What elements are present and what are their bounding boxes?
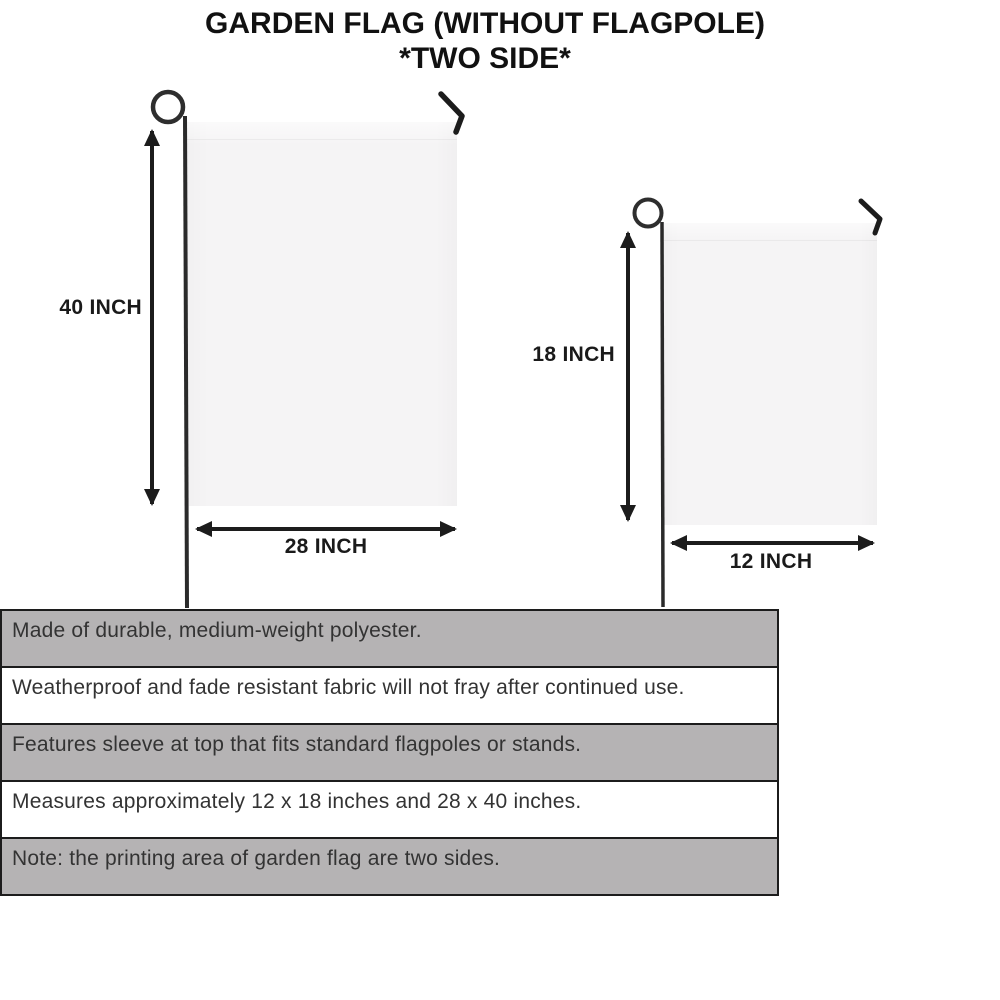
large-height-label: 40 INCH (50, 296, 142, 320)
small-flagpole (662, 222, 663, 607)
small-flag-hook-icon (861, 201, 880, 233)
feature-row: Note: the printing area of garden flag a… (2, 837, 777, 894)
small-flagpole-loop-icon (635, 200, 662, 227)
feature-row: Weatherproof and fade resistant fabric w… (2, 666, 777, 723)
feature-list: Made of durable, medium-weight polyester… (0, 609, 779, 896)
feature-row: Made of durable, medium-weight polyester… (2, 611, 777, 666)
small-height-label: 18 INCH (523, 343, 615, 367)
large-flag-hook-icon (441, 94, 462, 132)
large-flagpole-loop-icon (153, 92, 183, 122)
large-width-label: 28 INCH (236, 535, 416, 559)
feature-row: Features sleeve at top that fits standar… (2, 723, 777, 780)
small-width-label: 12 INCH (681, 550, 861, 574)
large-flagpole (185, 116, 187, 608)
product-size-diagram: GARDEN FLAG (WITHOUT FLAGPOLE) *TWO SIDE… (0, 0, 1000, 1000)
feature-row: Measures approximately 12 x 18 inches an… (2, 780, 777, 837)
